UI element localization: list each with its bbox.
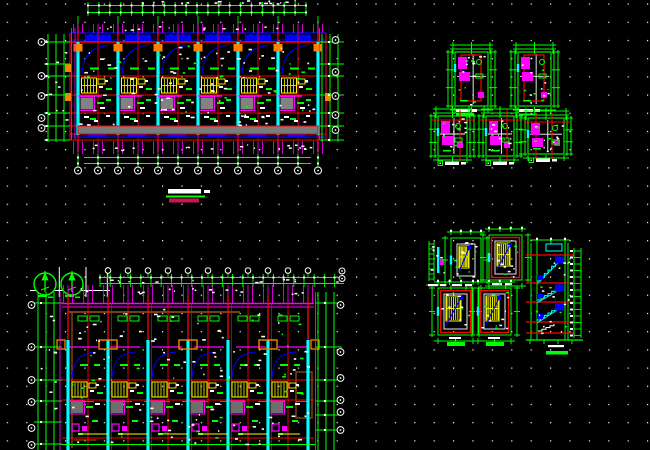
cad-drawing-canvas[interactable] xyxy=(0,0,650,450)
cad-viewport xyxy=(0,0,650,450)
